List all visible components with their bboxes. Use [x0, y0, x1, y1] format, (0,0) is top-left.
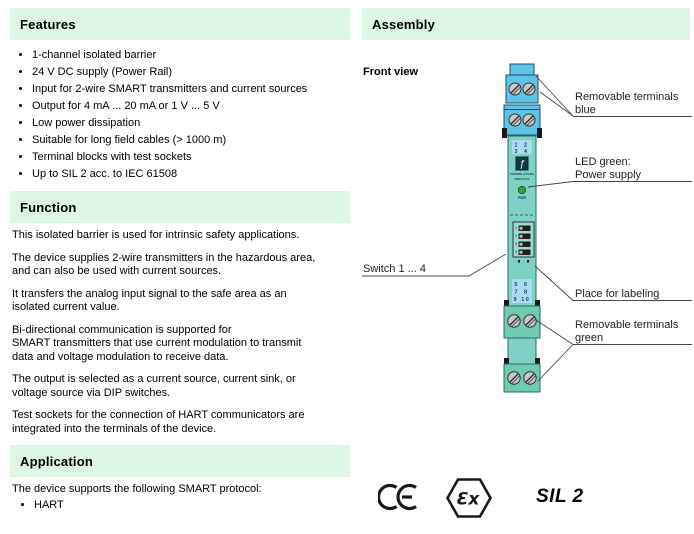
- screw-icon: [524, 372, 536, 384]
- callout-led-line2: Power supply: [575, 169, 642, 181]
- screw-icon: [524, 315, 536, 327]
- blue-terminal-block: [502, 64, 542, 138]
- model-name: KFD2-STC4: [515, 177, 530, 181]
- power-led-label: PWR: [518, 196, 526, 200]
- function-paragraph: Bi-directional communication is supporte…: [12, 324, 348, 365]
- application-item: HART: [34, 499, 348, 512]
- function-paragraph: The device supplies 2-wire transmitters …: [12, 252, 348, 279]
- features-header: Features: [10, 8, 350, 40]
- function-paragraph: This isolated barrier is used for intrin…: [12, 229, 348, 243]
- ex-mark-icon: Ɛx: [446, 477, 492, 519]
- screw-icon: [523, 114, 535, 126]
- terminal-cap: [510, 64, 534, 75]
- clamp: [537, 128, 542, 138]
- tick: [518, 260, 520, 263]
- assembly-header: Assembly: [362, 8, 690, 40]
- application-list: HART: [20, 499, 348, 512]
- callout-terminals-green: Removable terminals: [575, 319, 679, 331]
- function-paragraphs: This isolated barrier is used for intrin…: [10, 223, 350, 436]
- terminal-numbers-bottom-row1: 5 6: [514, 282, 529, 288]
- callout-terminals-blue-line2: blue: [575, 104, 596, 116]
- datasheet-page: Features 1-channel isolated barrier 24 V…: [0, 0, 694, 534]
- dip-number: 1: [515, 226, 517, 230]
- application-intro: The device supports the following SMART …: [12, 483, 348, 497]
- screw-icon: [508, 372, 520, 384]
- callout-terminals-green-line2: green: [575, 332, 603, 344]
- dip-slider: [520, 243, 523, 246]
- ce-mark-icon: [378, 482, 418, 512]
- terminal-numbers-top-row2: 3 4: [514, 149, 529, 155]
- ex-mark-text: Ɛx: [457, 490, 481, 510]
- feature-item: Input for 2-wire SMART transmitters and …: [32, 83, 350, 96]
- features-list: 1-channel isolated barrier 24 V DC suppl…: [18, 49, 350, 181]
- dip-number: 2: [515, 234, 517, 238]
- function-paragraph: The output is selected as a current sour…: [12, 373, 348, 400]
- feature-item: Low power dissipation: [32, 117, 350, 130]
- tick: [527, 260, 529, 263]
- feature-item: 24 V DC supply (Power Rail): [32, 66, 350, 79]
- sil-rating: SIL 2: [536, 486, 584, 508]
- screw-icon: [509, 83, 521, 95]
- dip-slider: [520, 235, 523, 238]
- dip-slider: [520, 227, 523, 230]
- brand-name: PEPPERL+FUCHS: [510, 172, 534, 176]
- terminal-numbers-bottom-row3: 9 10: [514, 297, 531, 303]
- feature-item: Terminal blocks with test sockets: [32, 151, 350, 164]
- function-paragraph: It transfers the analog input signal to …: [12, 288, 348, 315]
- terminal-numbers-bottom-row2: 7 8: [514, 290, 529, 296]
- left-column: Features 1-channel isolated barrier 24 V…: [10, 8, 350, 522]
- dip-slider: [520, 251, 523, 254]
- assembly-diagram: 1 2 3 4 ƒ PEPPERL+FUCHS KFD2-STC4 PWR 1 …: [362, 50, 694, 410]
- terminal-numbers-top-row1: 1 2: [514, 143, 529, 149]
- function-header: Function: [10, 191, 350, 223]
- callout-switches: Switch 1 ... 4: [363, 263, 426, 275]
- dip-number: 4: [515, 250, 517, 254]
- feature-item: Up to SIL 2 acc. to IEC 61508: [32, 168, 350, 181]
- callout-terminals-blue: Removable terminals: [575, 91, 679, 103]
- feature-item: Suitable for long field cables (> 1000 m…: [32, 134, 350, 147]
- feature-item: Output for 4 mA ... 20 mA or 1 V ... 5 V: [32, 100, 350, 113]
- callout-labeling: Place for labeling: [575, 288, 659, 300]
- screw-icon: [523, 83, 535, 95]
- brand-logo-glyph: ƒ: [519, 159, 525, 170]
- clamp: [502, 128, 507, 138]
- power-led-icon: [518, 186, 525, 193]
- callout-led: LED green:: [575, 156, 631, 168]
- application-header: Application: [10, 445, 350, 477]
- screw-icon: [508, 315, 520, 327]
- application-body: The device supports the following SMART …: [10, 477, 350, 512]
- dip-switch-block: 1 2 3 4: [513, 222, 534, 263]
- screw-icon: [509, 114, 521, 126]
- feature-item: 1-channel isolated barrier: [32, 49, 350, 62]
- function-paragraph: Test sockets for the connection of HART …: [12, 409, 348, 436]
- dip-number: 3: [515, 242, 517, 246]
- green-terminal-block-upper: [504, 300, 540, 338]
